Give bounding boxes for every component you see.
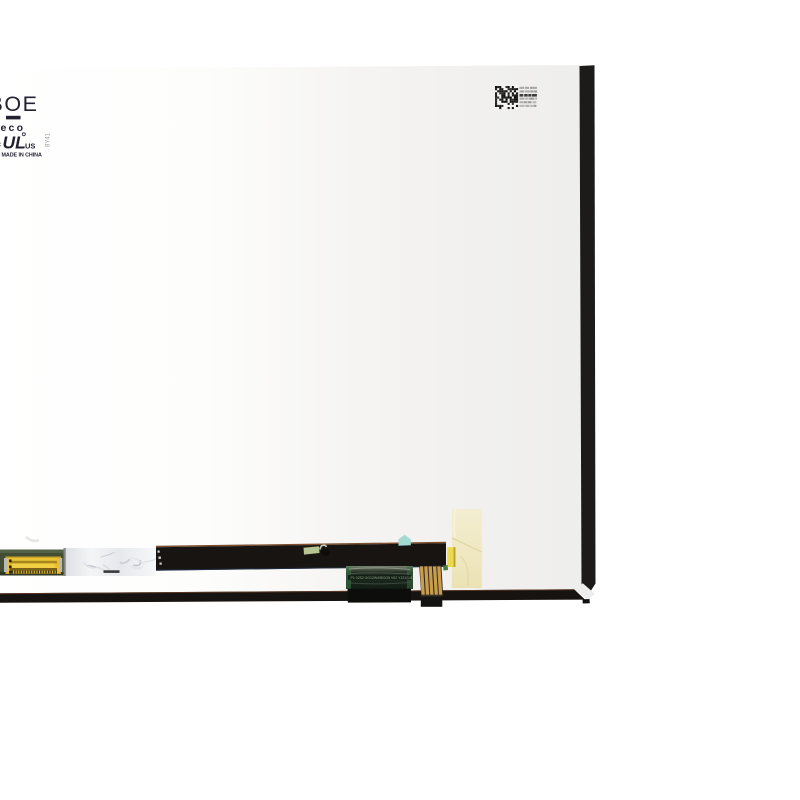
svg-text:P1 0232 GG12W49E0G5 V02 YJ21GJ: P1 0232 GG12W49E0G5 V02 YJ21GJ4 xyxy=(351,576,413,580)
svg-text:c: c xyxy=(0,139,1,149)
svg-text:8Y41: 8Y41 xyxy=(46,132,52,147)
svg-text:US: US xyxy=(25,142,35,151)
svg-text:BOE: BOE xyxy=(0,92,38,116)
svg-text:MADE IN CHINA: MADE IN CHINA xyxy=(2,152,42,158)
